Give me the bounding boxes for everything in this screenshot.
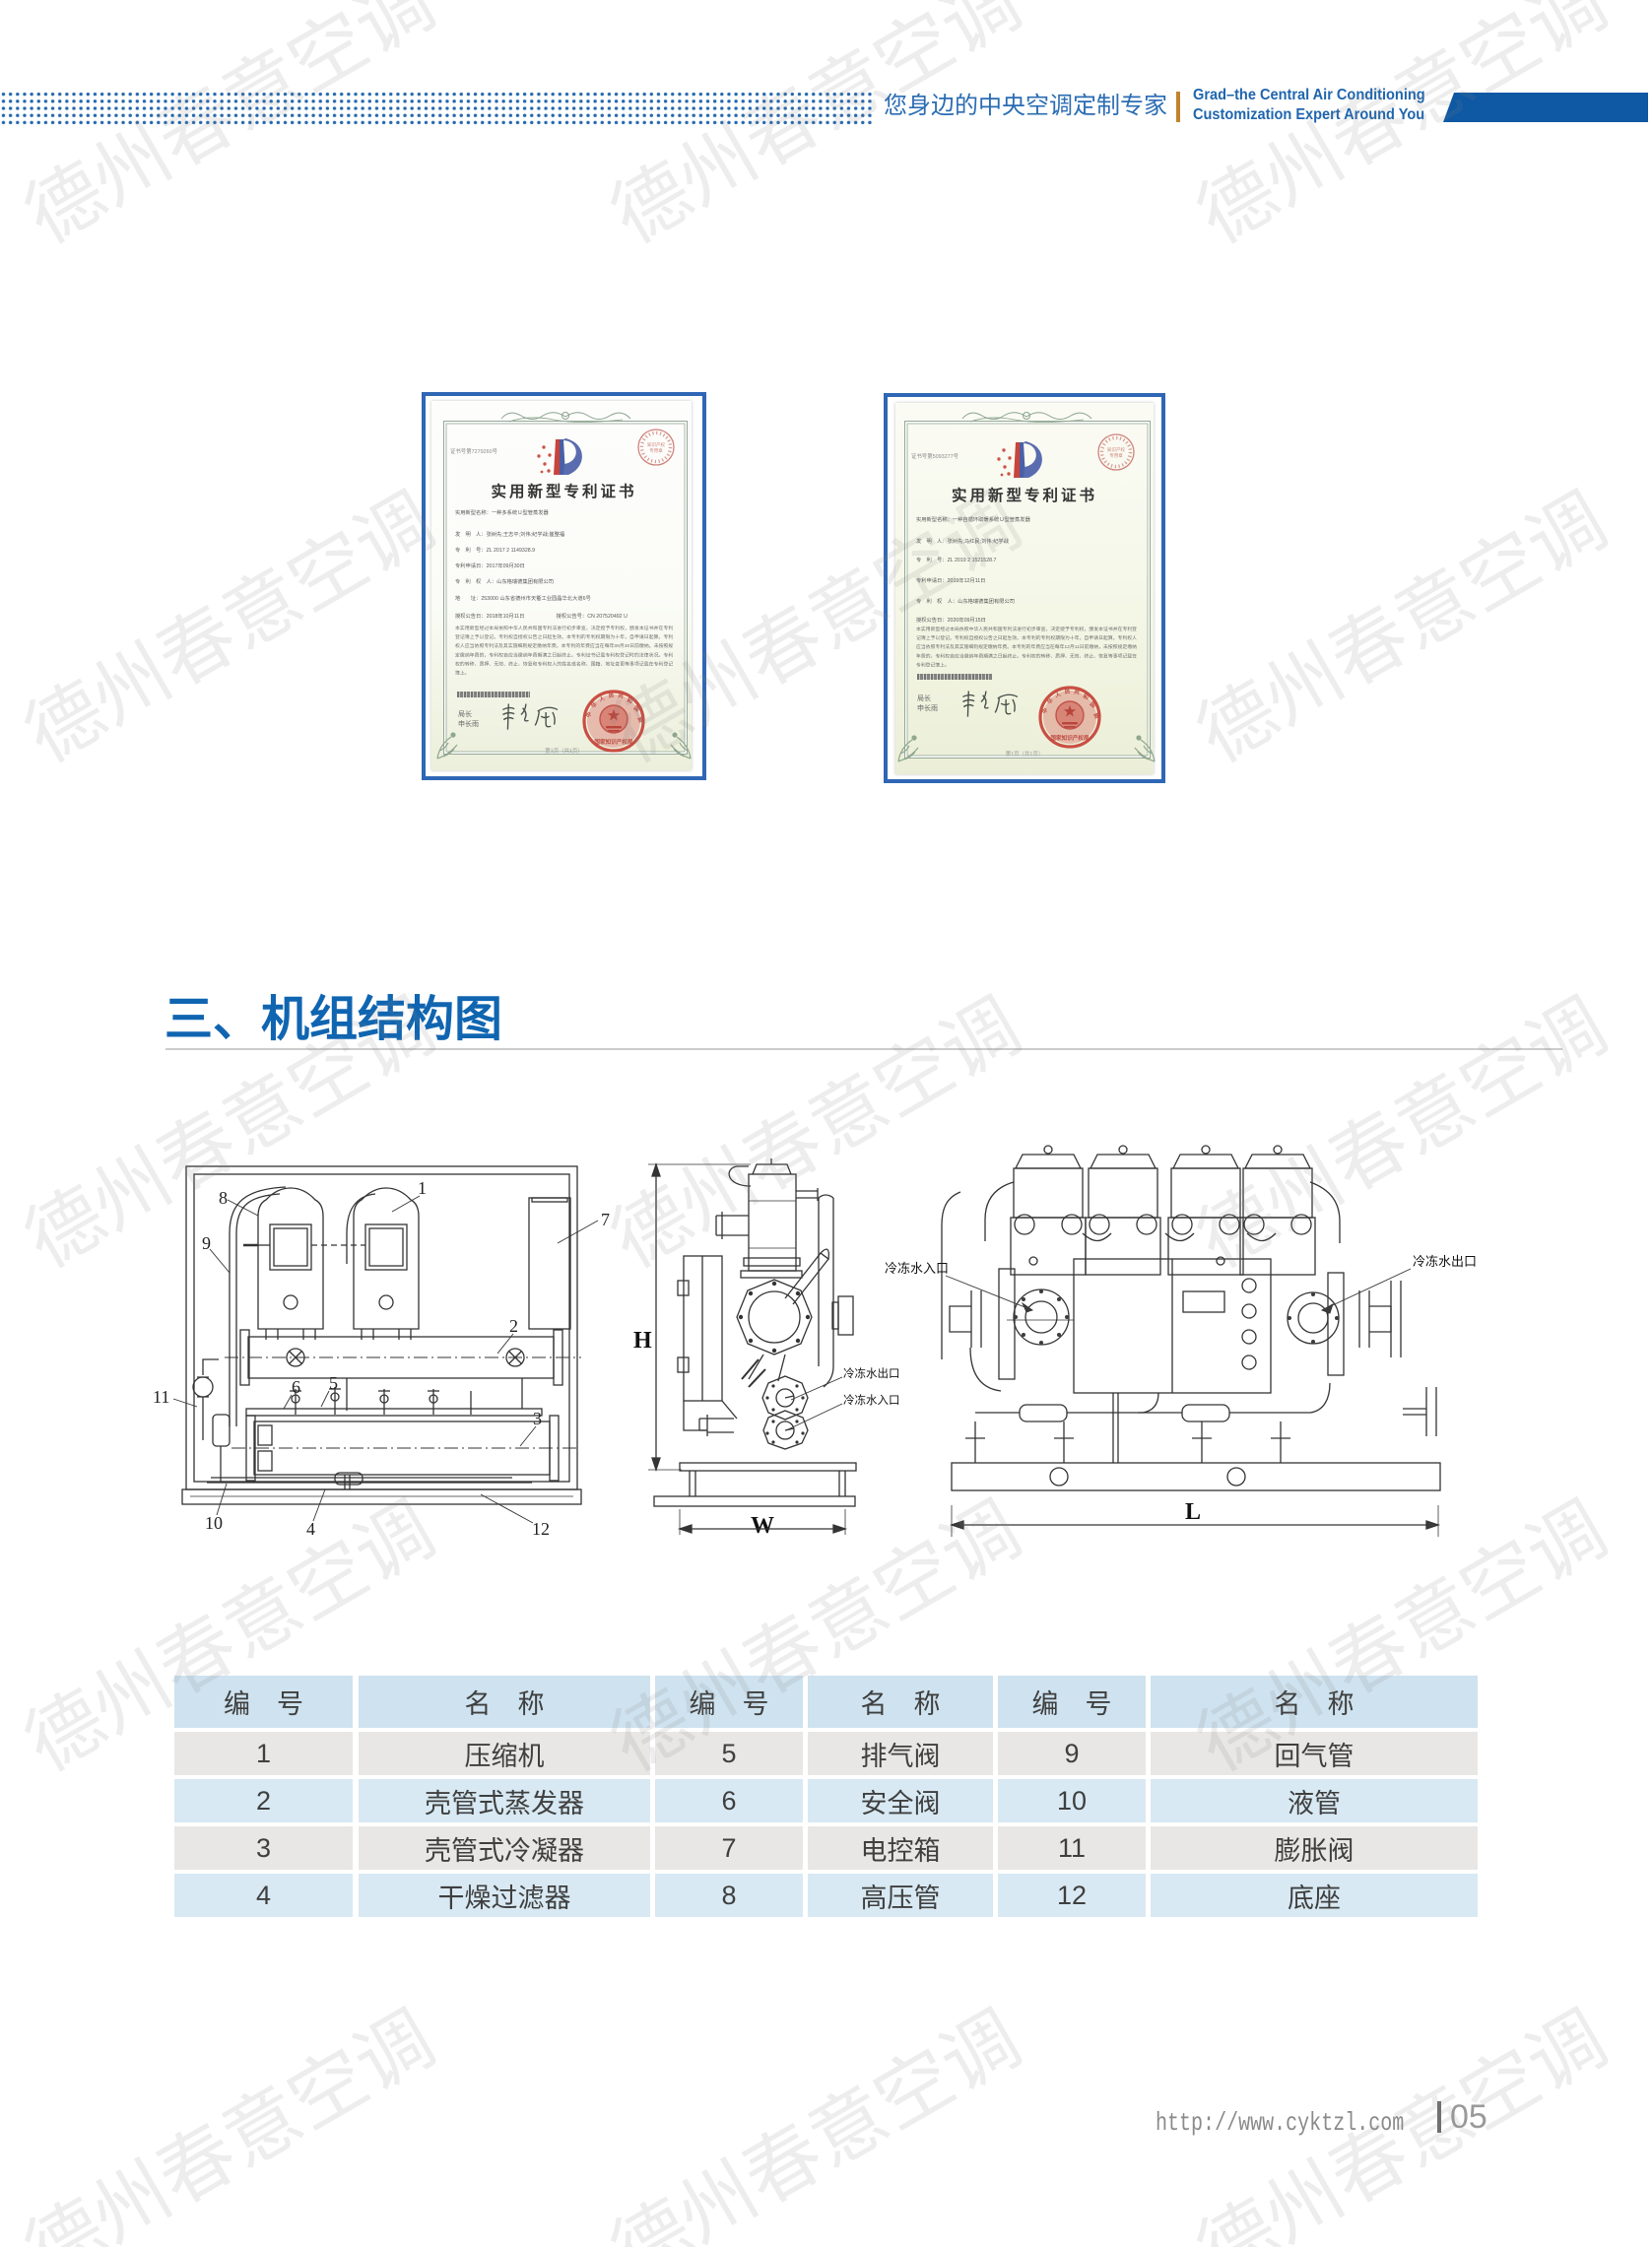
svg-text:6: 6 <box>292 1377 300 1397</box>
svg-text:冷冻水出口: 冷冻水出口 <box>1413 1254 1477 1269</box>
svg-text:10: 10 <box>205 1513 223 1533</box>
svg-text:专用章: 专用章 <box>1109 452 1123 459</box>
svg-text:9: 9 <box>202 1233 211 1253</box>
svg-text:德州春意空调: 德州春意空调 <box>1184 0 1620 260</box>
svg-text:德州春意空调: 德州春意空调 <box>598 1996 1034 2247</box>
svg-text:8: 8 <box>219 1188 228 1208</box>
svg-text:4: 4 <box>306 1519 315 1539</box>
svg-text:德州春意空调: 德州春意空调 <box>1184 478 1620 778</box>
svg-text:H: H <box>633 1328 652 1354</box>
svg-text:7: 7 <box>601 1210 610 1229</box>
svg-text:W: W <box>751 1513 774 1539</box>
svg-text:知识产权: 知识产权 <box>647 441 665 448</box>
svg-text:国家知识产权局: 国家知识产权局 <box>594 738 633 746</box>
svg-text:11: 11 <box>153 1387 169 1407</box>
svg-text:德州春意空调: 德州春意空调 <box>598 0 1034 260</box>
svg-text:知识产权: 知识产权 <box>1107 446 1125 453</box>
svg-text:专用章: 专用章 <box>649 447 663 454</box>
svg-text:冷冻水出口: 冷冻水出口 <box>843 1366 900 1380</box>
svg-text:L: L <box>1185 1499 1201 1525</box>
svg-text:12: 12 <box>532 1519 550 1539</box>
svg-text:1: 1 <box>418 1178 427 1198</box>
svg-text:2: 2 <box>509 1316 518 1336</box>
svg-text:德州春意空调: 德州春意空调 <box>12 478 448 778</box>
svg-text:德州春意空调: 德州春意空调 <box>12 1996 448 2247</box>
svg-text:冷冻水入口: 冷冻水入口 <box>885 1261 949 1276</box>
svg-text:德州春意空调: 德州春意空调 <box>12 0 448 260</box>
svg-text:国家知识产权局: 国家知识产权局 <box>1050 734 1090 742</box>
svg-text:冷冻水入口: 冷冻水入口 <box>843 1393 900 1407</box>
svg-text:3: 3 <box>533 1409 542 1428</box>
svg-text:5: 5 <box>329 1373 338 1393</box>
